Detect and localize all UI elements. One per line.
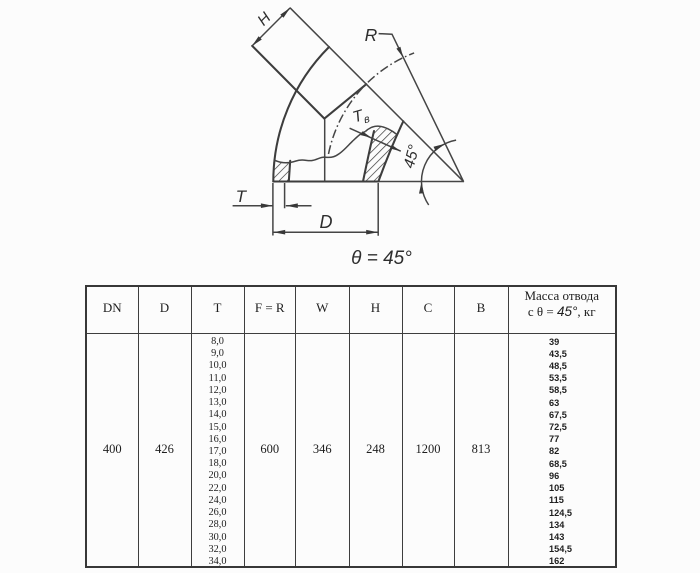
svg-text:Tв: Tв — [351, 106, 372, 129]
svg-text:D: D — [320, 212, 333, 232]
svg-text:T: T — [236, 187, 248, 206]
svg-text:R: R — [365, 25, 378, 45]
svg-text:45°: 45° — [401, 143, 423, 170]
svg-text:θ = 45°: θ = 45° — [351, 248, 412, 269]
